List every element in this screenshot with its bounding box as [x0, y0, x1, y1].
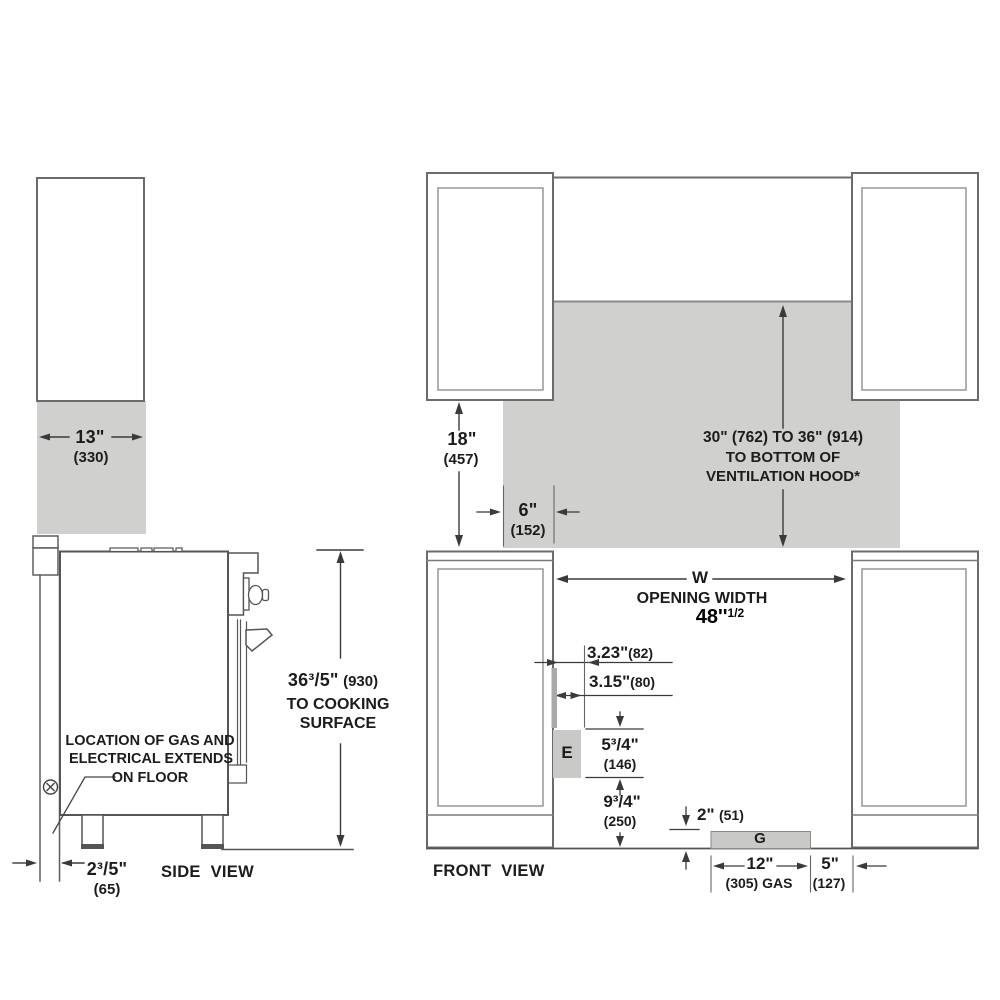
dim-13in-label: 13" — [75, 428, 104, 447]
dim-13in-mm: (330) — [73, 450, 108, 466]
dim-wall-clearance-label: 2³/5" — [87, 860, 128, 879]
side-shaded-area — [37, 401, 146, 534]
dim-12in-label: 12" — [747, 855, 774, 873]
dim-gas-height-mm: (51) — [719, 807, 744, 823]
dim-323-value: 3.23" — [587, 643, 628, 662]
side-view-label: SIDE VIEW — [161, 864, 254, 881]
dim-hood-line3: VENTILATION HOOD* — [706, 469, 860, 485]
installation-diagram: 13" (330) 36³/5" (930) TO COOKING SURFAC… — [0, 0, 1000, 1000]
front-view-label: FRONT VIEW — [433, 863, 545, 880]
opening-width-number: 48'' — [696, 606, 728, 628]
dim-e-height-label: 5³/4" — [601, 736, 638, 754]
oven-door-edge — [238, 620, 247, 765]
dim-5in-mm: (127) — [813, 876, 846, 891]
dim-cooking-height-mm: (930) — [343, 673, 378, 690]
dim-wall-clearance-arrows — [13, 860, 84, 867]
dim-gas-height-arrows — [670, 807, 699, 869]
dim-cooking-height-line2: TO COOKING — [287, 697, 390, 714]
opening-width-fraction: 1/2 — [728, 606, 745, 620]
side-tall-cabinet — [37, 178, 144, 401]
gas-box-label: G — [754, 831, 766, 847]
gas-outlet-icon — [44, 780, 58, 794]
dim-wall-clearance-mm: (65) — [94, 882, 121, 898]
opening-width-value: 48''1/2 — [696, 607, 744, 628]
dim-12in-mm: (305) GAS — [726, 876, 793, 891]
dim-hood-line1: 30" (762) TO 36" (914) — [703, 430, 863, 446]
dim-e-height-mm: (146) — [604, 757, 637, 772]
dim-6in-mm: (152) — [510, 523, 545, 539]
dim-cooking-height-line3: SURFACE — [300, 716, 376, 733]
electrical-box-label: E — [561, 744, 572, 762]
cooktop-burners — [110, 548, 182, 552]
dim-6in-label: 6" — [519, 501, 538, 520]
gas-note-line1: LOCATION OF GAS AND — [65, 734, 234, 749]
filler-strip — [552, 668, 558, 728]
dim-315-value: 3.15" — [589, 672, 630, 691]
dim-gas-height-value: 2" — [697, 805, 715, 824]
dim-323-mm: (82) — [628, 645, 653, 661]
range-legs — [81, 815, 224, 849]
dim-hood-line2: TO BOTTOM OF — [726, 450, 840, 466]
dim-cooking-height-value: 36³/5" — [288, 670, 339, 690]
gas-note-line2: ELECTRICAL EXTENDS — [69, 752, 233, 767]
dim-5in-label: 5" — [821, 855, 839, 873]
dim-18in-arrows — [455, 402, 463, 547]
dim-323-label: 3.23"(82) — [587, 644, 653, 663]
opening-width-symbol: W — [692, 569, 708, 587]
dim-e-floor-label: 9³/4" — [603, 793, 640, 811]
door-lower-bracket — [228, 765, 247, 783]
dim-cooking-height-label: 36³/5" (930) — [288, 671, 378, 691]
gas-note-line3: ON FLOOR — [112, 771, 189, 786]
dim-gas-height-label: 2" (51) — [697, 806, 744, 825]
dim-315-label: 3.15"(80) — [589, 673, 655, 692]
dim-18in-mm: (457) — [443, 452, 478, 468]
dim-18in-label: 18" — [447, 430, 476, 449]
dim-e-floor-mm: (250) — [604, 814, 637, 829]
door-handle — [246, 629, 272, 651]
diagram-linework — [0, 0, 1000, 1000]
control-knob — [244, 578, 269, 610]
dim-315-mm: (80) — [630, 674, 655, 690]
